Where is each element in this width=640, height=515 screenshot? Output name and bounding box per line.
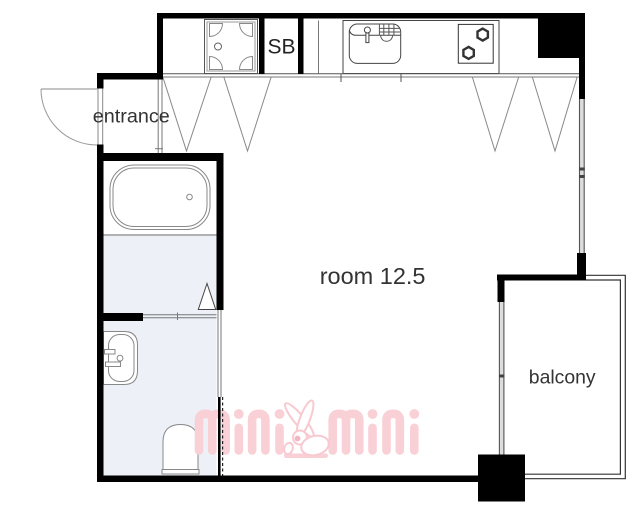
svg-text:entrance: entrance [93,105,170,127]
svg-text:SB: SB [268,35,296,58]
svg-text:balcony: balcony [529,366,596,388]
svg-text:room 12.5: room 12.5 [320,263,426,289]
